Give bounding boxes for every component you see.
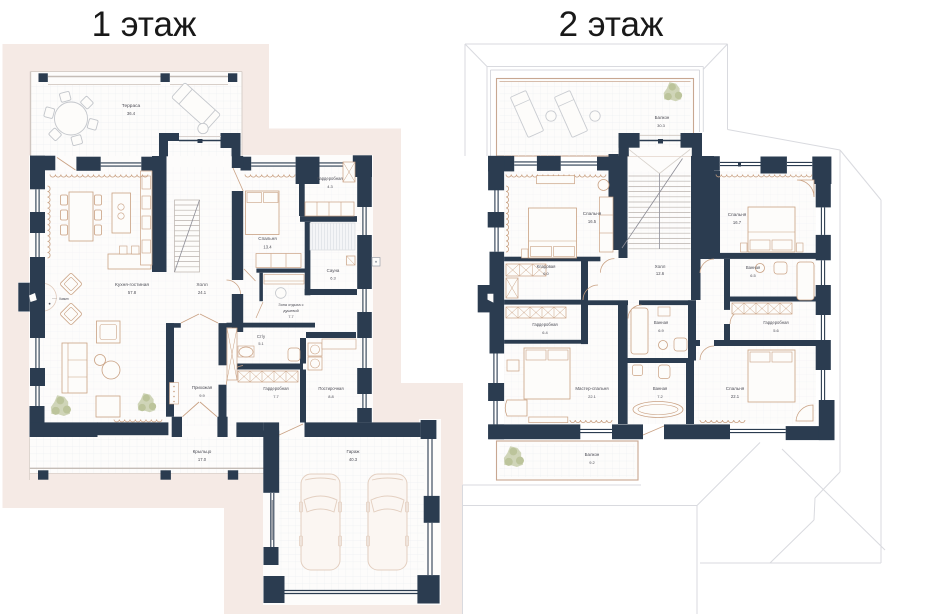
svg-text:Ванная: Ванная [654, 320, 668, 325]
svg-text:Холл: Холл [196, 282, 208, 288]
svg-text:Гараж: Гараж [347, 449, 361, 454]
svg-text:5.6: 5.6 [773, 328, 779, 333]
svg-text:22.1: 22.1 [731, 394, 740, 399]
svg-text:6.4: 6.4 [542, 330, 548, 335]
svg-text:16.7: 16.7 [733, 220, 742, 225]
svg-text:Зона отдыха с: Зона отдыха с [278, 303, 303, 307]
svg-text:6.5: 6.5 [750, 273, 756, 278]
svg-text:Кухня-гостиная: Кухня-гостиная [115, 282, 149, 288]
svg-text:22.1: 22.1 [588, 394, 597, 399]
svg-text:12.6: 12.6 [656, 271, 665, 276]
svg-text:Холл: Холл [655, 264, 666, 269]
svg-text:6.3: 6.3 [330, 276, 336, 281]
svg-text:Терраса: Терраса [122, 103, 141, 109]
svg-text:Гардеробная: Гардеробная [263, 386, 288, 391]
svg-text:36.4: 36.4 [127, 111, 136, 116]
svg-text:9.9: 9.9 [199, 393, 205, 398]
svg-text:7.7: 7.7 [273, 394, 279, 399]
svg-text:17.0: 17.0 [198, 457, 207, 462]
svg-text:5.1: 5.1 [258, 342, 263, 346]
svg-text:Ванная: Ванная [746, 265, 760, 270]
svg-text:Спальня: Спальня [583, 211, 602, 216]
svg-text:Ст/у: Ст/у [257, 334, 266, 339]
svg-text:40.3: 40.3 [349, 457, 358, 462]
svg-text:Гардеробная: Гардеробная [763, 320, 788, 325]
svg-text:Гардеробная: Гардеробная [317, 176, 342, 181]
svg-text:Ванная: Ванная [653, 386, 667, 391]
svg-text:8.8: 8.8 [328, 394, 334, 399]
svg-text:Гардеробная: Гардеробная [532, 322, 557, 327]
svg-text:2 этаж: 2 этаж [559, 5, 664, 44]
svg-text:24.1: 24.1 [198, 290, 207, 295]
svg-text:7.2: 7.2 [657, 394, 663, 399]
svg-text:Постирочная: Постирочная [318, 386, 343, 391]
svg-text:16.5: 16.5 [588, 219, 597, 224]
svg-text:Кладовая: Кладовая [537, 264, 556, 269]
svg-text:30.3: 30.3 [657, 123, 666, 128]
svg-text:6.0: 6.0 [543, 271, 549, 276]
svg-text:4.3: 4.3 [327, 184, 333, 189]
svg-text:Балкон: Балкон [655, 115, 670, 120]
svg-text:Камин: Камин [59, 297, 69, 301]
svg-text:Спальня: Спальня [258, 236, 277, 241]
svg-text:Балкон: Балкон [585, 452, 600, 457]
svg-text:Сауна: Сауна [327, 268, 340, 273]
svg-text:Прихожая: Прихожая [192, 385, 213, 390]
svg-text:душевой: душевой [283, 309, 298, 313]
svg-text:Спальня: Спальня [726, 386, 745, 391]
svg-text:9.2: 9.2 [589, 460, 595, 465]
svg-text:57.8: 57.8 [128, 290, 137, 295]
svg-text:1 этаж: 1 этаж [92, 5, 197, 44]
svg-text:Мастер-спальня: Мастер-спальня [575, 386, 609, 391]
svg-text:6.9: 6.9 [658, 328, 664, 333]
svg-text:Крыльцо: Крыльцо [193, 449, 212, 454]
svg-text:Спальня: Спальня [728, 212, 747, 217]
svg-text:7.7: 7.7 [288, 315, 293, 319]
svg-text:13.4: 13.4 [263, 245, 272, 250]
